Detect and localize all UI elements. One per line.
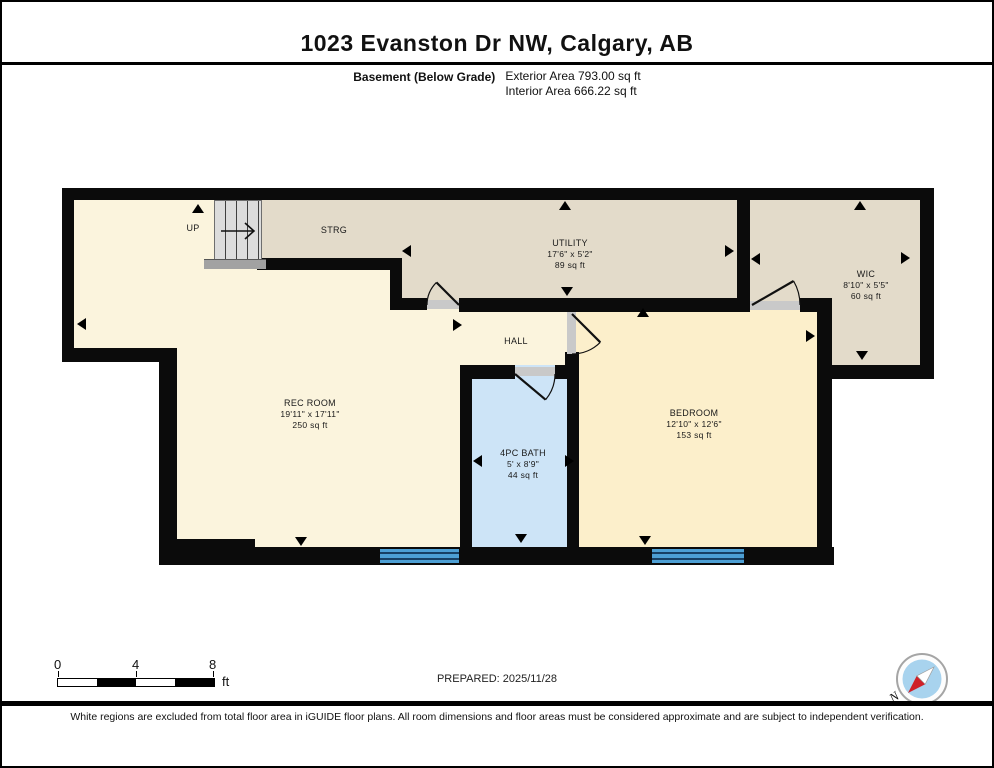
stairs-up-label: UP: [180, 223, 206, 234]
room-label-hall: HALL: [481, 336, 551, 347]
exterior-area: Exterior Area 793.00 sq ft: [505, 69, 640, 84]
room-label-storage: STRG: [294, 225, 374, 236]
prepared-date: PREPARED: 2025/11/28: [2, 673, 992, 685]
direction-arrow: [637, 308, 649, 317]
title-divider: [2, 62, 994, 65]
wall-left: [62, 188, 74, 362]
room-label-bath: 4PC BATH 5' x 8'9" 44 sq ft: [473, 448, 573, 481]
wall-storage-bottom: [257, 258, 402, 270]
direction-arrow: [473, 455, 482, 467]
direction-arrow: [192, 204, 204, 213]
direction-arrow: [854, 201, 866, 210]
area-summary: Exterior Area 793.00 sq ft Interior Area…: [505, 69, 640, 99]
room-label-wic: WIC 8'10" x 5'5" 60 sq ft: [822, 269, 910, 302]
wall-utility-bottom-b: [459, 298, 750, 312]
wall-top: [62, 188, 934, 200]
wall-left-lower: [159, 348, 177, 565]
door-threshold-bath: [515, 367, 555, 376]
room-label-utility: UTILITY 17'6" x 5'2" 89 sq ft: [520, 238, 620, 271]
direction-arrow: [402, 245, 411, 257]
direction-arrow: [806, 330, 815, 342]
direction-arrow: [856, 351, 868, 360]
scale-tick-8: 8: [209, 657, 216, 672]
staircase: [214, 200, 262, 260]
direction-arrow: [561, 287, 573, 296]
floor-summary: Basement (Below Grade) Exterior Area 793…: [2, 69, 992, 99]
direction-arrow: [725, 245, 734, 257]
wall-wic-bottom: [817, 365, 934, 379]
stair-landing: [204, 259, 266, 269]
wall-bath-left: [460, 365, 472, 564]
page-title: 1023 Evanston Dr NW, Calgary, AB: [2, 30, 992, 57]
direction-arrow: [559, 201, 571, 210]
scale-tick-4: 4: [132, 657, 139, 672]
door-threshold-bedroom: [567, 312, 576, 354]
scale-tick-0: 0: [54, 657, 61, 672]
direction-arrow: [515, 534, 527, 543]
direction-arrow: [639, 536, 651, 545]
disclaimer-text: White regions are excluded from total fl…: [12, 711, 982, 723]
interior-area: Interior Area 666.22 sq ft: [505, 84, 640, 99]
wall-utility-bottom-a: [397, 298, 427, 310]
direction-arrow: [453, 319, 462, 331]
room-label-bedroom: BEDROOM 12'10" x 12'6" 153 sq ft: [634, 408, 754, 441]
door-threshold-utility: [427, 300, 459, 309]
window-rec-room: [380, 549, 459, 563]
footer-divider: [2, 701, 994, 706]
door-threshold-wic: [750, 301, 800, 310]
window-bedroom: [652, 549, 744, 563]
direction-arrow: [77, 318, 86, 330]
direction-arrow: [751, 253, 760, 265]
floor-label: Basement (Below Grade): [353, 69, 495, 99]
room-label-rec-room: REC ROOM 19'11" x 17'11" 250 sq ft: [250, 398, 370, 431]
wall-right-wic: [920, 188, 934, 379]
floorplan-page: 1023 Evanston Dr NW, Calgary, AB Basemen…: [0, 0, 994, 768]
direction-arrow: [565, 455, 574, 467]
wall-bedroom-right: [817, 298, 832, 565]
wall-utility-wic: [737, 188, 750, 310]
direction-arrow: [295, 537, 307, 546]
excluded-region: [4, 362, 161, 662]
direction-arrow: [901, 252, 910, 264]
